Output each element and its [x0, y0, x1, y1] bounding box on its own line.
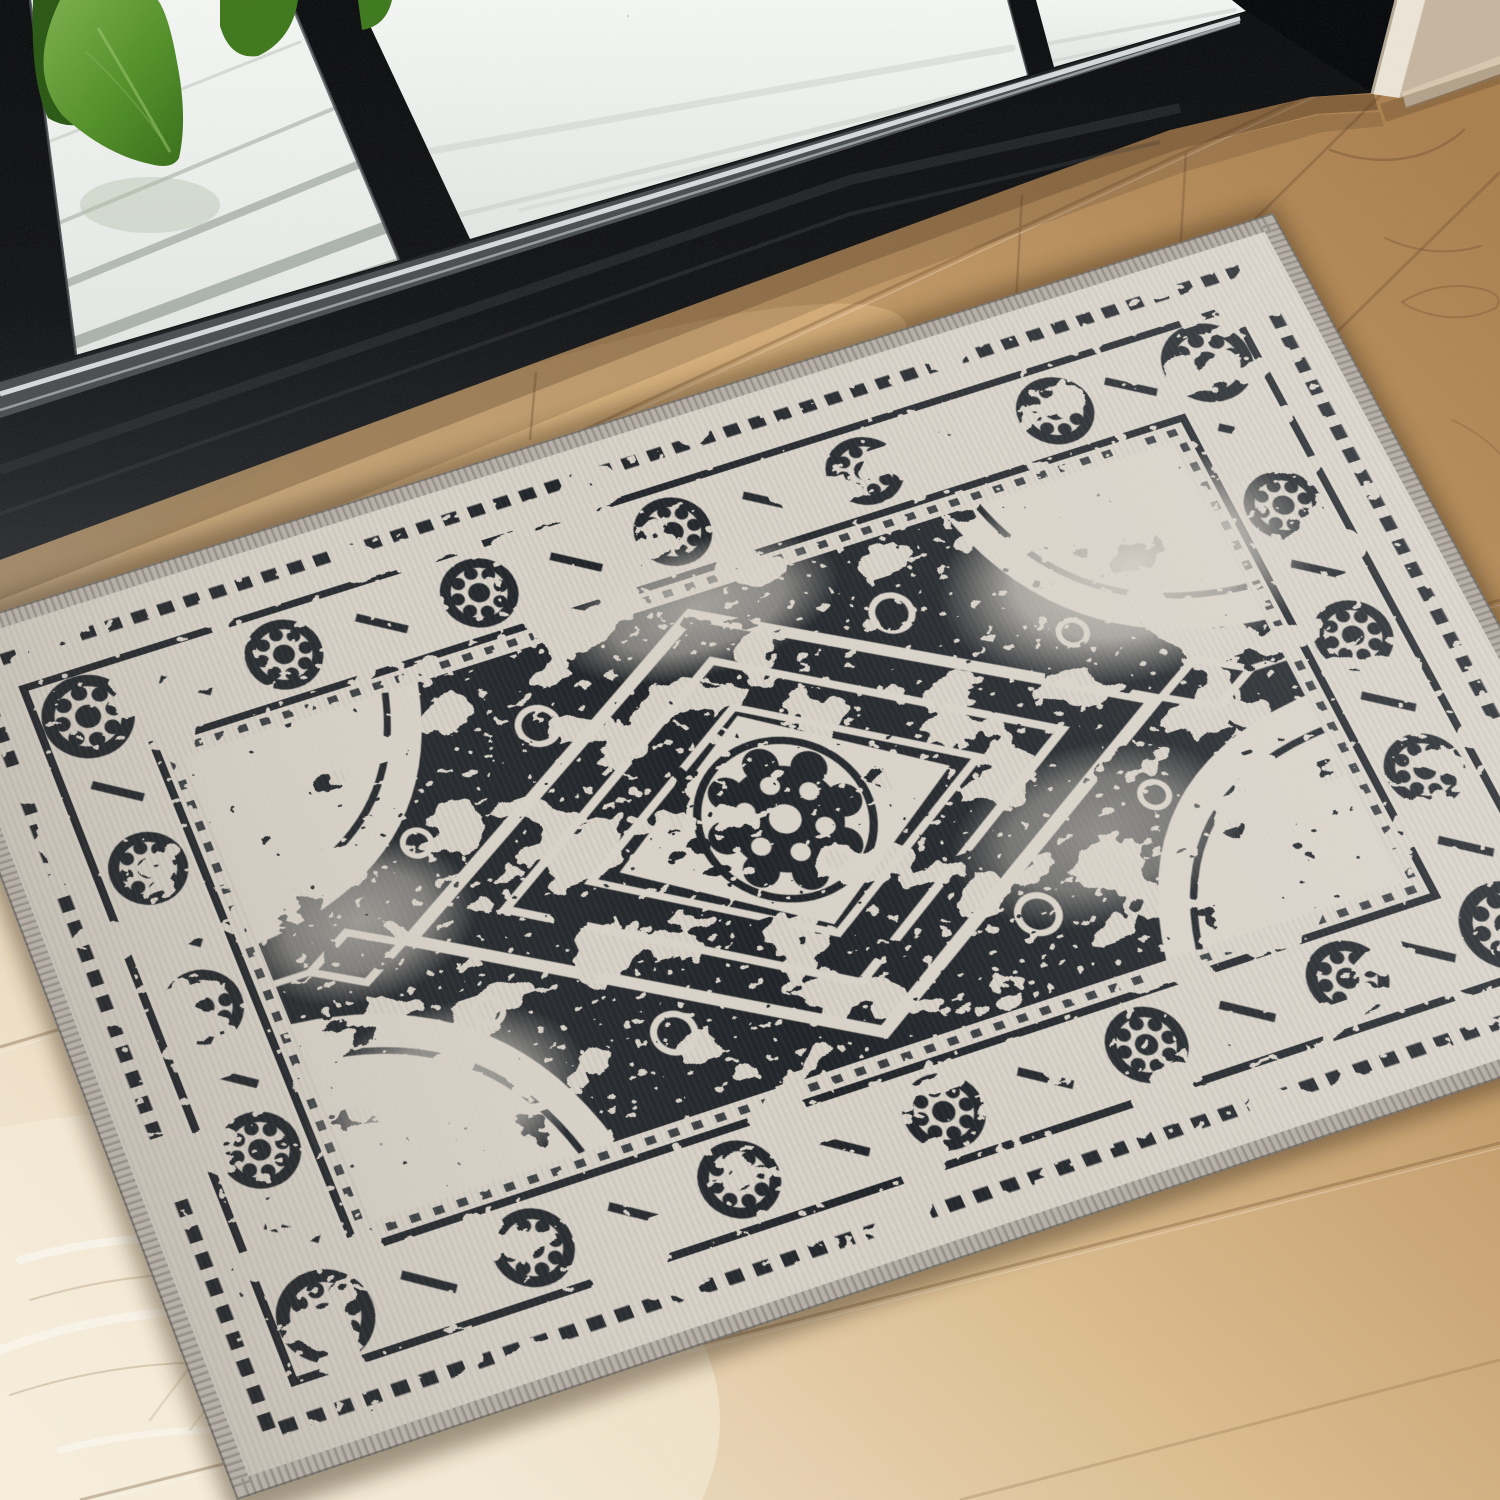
product-photo-scene: Product photo: a distressed vintage orie…	[0, 0, 1500, 1500]
